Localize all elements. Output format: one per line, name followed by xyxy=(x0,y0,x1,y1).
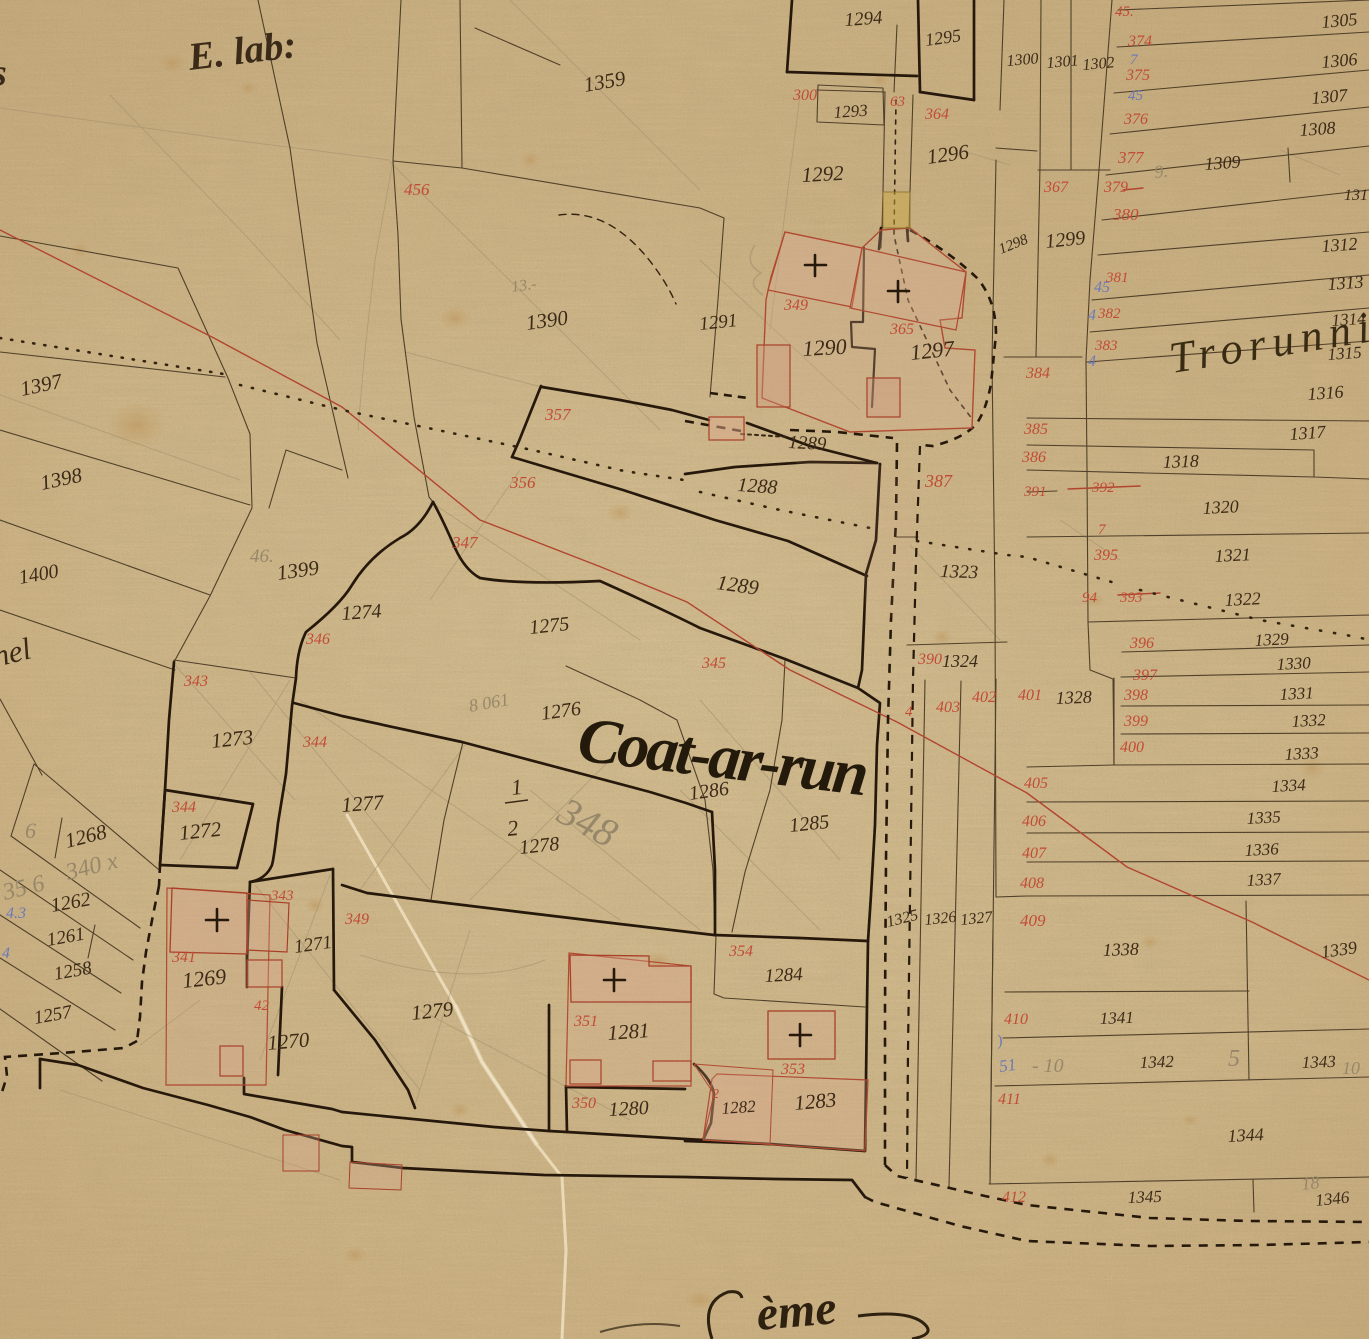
svg-text:1307: 1307 xyxy=(1311,85,1350,108)
svg-text:376: 376 xyxy=(1123,111,1148,128)
svg-text:1335: 1335 xyxy=(1246,807,1281,828)
svg-text:386: 386 xyxy=(1021,449,1046,466)
svg-text:350: 350 xyxy=(571,1095,596,1112)
svg-text:408: 408 xyxy=(1020,875,1044,892)
svg-text:356: 356 xyxy=(509,473,536,492)
svg-text:45.: 45. xyxy=(1115,4,1134,20)
svg-text:1322: 1322 xyxy=(1224,588,1261,610)
svg-text:1288: 1288 xyxy=(737,474,778,499)
svg-text:10: 10 xyxy=(1342,1058,1360,1078)
svg-text:1280: 1280 xyxy=(608,1097,649,1121)
svg-text:349: 349 xyxy=(783,297,808,314)
svg-text:1330: 1330 xyxy=(1276,653,1311,674)
svg-text:396: 396 xyxy=(1129,635,1154,652)
svg-text:1289: 1289 xyxy=(788,432,828,455)
svg-text:346: 346 xyxy=(305,631,330,648)
svg-text:4.3: 4.3 xyxy=(6,905,26,922)
svg-text:1328: 1328 xyxy=(1055,687,1092,708)
svg-text:1318: 1318 xyxy=(1162,451,1199,472)
svg-text:1278: 1278 xyxy=(518,833,560,859)
svg-text:391: 391 xyxy=(1023,484,1047,500)
svg-text:94: 94 xyxy=(1082,590,1098,606)
svg-text:409: 409 xyxy=(1020,911,1046,930)
svg-text:400: 400 xyxy=(1120,739,1144,756)
svg-text:45: 45 xyxy=(1128,88,1144,104)
svg-text:377: 377 xyxy=(1117,148,1145,167)
svg-text:1283: 1283 xyxy=(793,1087,837,1115)
svg-text:1300: 1300 xyxy=(1006,50,1039,70)
svg-text:405: 405 xyxy=(1024,775,1048,792)
svg-text:46.: 46. xyxy=(250,546,274,567)
svg-text:383: 383 xyxy=(1094,338,1118,354)
svg-text:392: 392 xyxy=(1091,480,1115,496)
svg-text:395: 395 xyxy=(1093,547,1118,564)
svg-text:1293: 1293 xyxy=(833,101,868,122)
svg-text:1306: 1306 xyxy=(1321,49,1359,72)
svg-text:1332: 1332 xyxy=(1291,710,1326,731)
svg-text:406: 406 xyxy=(1022,813,1046,830)
svg-text:375: 375 xyxy=(1125,67,1150,84)
svg-text:4: 4 xyxy=(905,704,913,720)
svg-text:398: 398 xyxy=(1123,687,1148,704)
svg-text:1345: 1345 xyxy=(1127,1187,1162,1207)
svg-text:403: 403 xyxy=(936,699,960,716)
svg-text:367: 367 xyxy=(1043,179,1069,196)
svg-text:1281: 1281 xyxy=(607,1018,651,1045)
svg-text:1292: 1292 xyxy=(801,161,845,187)
svg-text:387: 387 xyxy=(924,471,953,491)
svg-text:384: 384 xyxy=(1025,365,1050,382)
svg-text:401: 401 xyxy=(1018,687,1042,704)
svg-text:343: 343 xyxy=(270,888,294,904)
svg-text:5: 5 xyxy=(1228,1046,1240,1072)
svg-text:1337: 1337 xyxy=(1246,869,1282,890)
svg-text:2: 2 xyxy=(712,1087,719,1102)
svg-text:1299: 1299 xyxy=(1044,227,1086,253)
svg-text:1317: 1317 xyxy=(1289,421,1327,444)
svg-text:18: 18 xyxy=(1300,1172,1320,1194)
svg-text:51: 51 xyxy=(998,1055,1017,1076)
svg-text:456: 456 xyxy=(404,180,430,199)
svg-text:390: 390 xyxy=(917,651,942,668)
svg-text:1269: 1269 xyxy=(181,964,227,993)
svg-text:1334: 1334 xyxy=(1271,775,1306,796)
svg-text:1343: 1343 xyxy=(1301,1052,1336,1072)
svg-text:1320: 1320 xyxy=(1202,496,1239,518)
svg-text:402: 402 xyxy=(972,689,996,706)
svg-text:385: 385 xyxy=(1023,421,1048,438)
svg-text:1313: 1313 xyxy=(1327,272,1364,294)
svg-text:1329: 1329 xyxy=(1254,629,1289,650)
svg-text:- 10: - 10 xyxy=(1032,1055,1064,1077)
svg-text:1344: 1344 xyxy=(1227,1124,1264,1146)
svg-text:300: 300 xyxy=(792,87,817,104)
svg-text:1274: 1274 xyxy=(341,600,382,625)
svg-text:1326: 1326 xyxy=(924,909,958,929)
svg-text:s: s xyxy=(0,52,7,94)
svg-text:1324: 1324 xyxy=(942,651,978,671)
svg-text:1270: 1270 xyxy=(266,1027,310,1055)
svg-text:6: 6 xyxy=(25,818,36,843)
svg-text:1305: 1305 xyxy=(1321,9,1359,32)
svg-text:341: 341 xyxy=(171,949,196,966)
svg-text:1331: 1331 xyxy=(1279,683,1314,704)
svg-text:397: 397 xyxy=(1132,667,1158,684)
svg-text:353: 353 xyxy=(780,1061,805,1078)
svg-text:349: 349 xyxy=(344,911,369,928)
svg-text:374: 374 xyxy=(1127,33,1152,50)
svg-text:345: 345 xyxy=(701,655,726,672)
svg-text:1291: 1291 xyxy=(698,310,738,335)
svg-text:ème: ème xyxy=(754,1281,838,1339)
svg-text:1321: 1321 xyxy=(1214,544,1251,566)
svg-text:63: 63 xyxy=(890,94,905,110)
svg-text:381: 381 xyxy=(1105,270,1129,286)
svg-text:399: 399 xyxy=(1123,713,1148,730)
svg-text:1338: 1338 xyxy=(1102,939,1139,960)
svg-text:1316: 1316 xyxy=(1307,382,1344,404)
svg-text:1342: 1342 xyxy=(1139,1052,1174,1072)
svg-text:1282: 1282 xyxy=(721,1097,757,1118)
svg-text:4: 4 xyxy=(1088,307,1096,324)
svg-text:382: 382 xyxy=(1097,306,1121,322)
svg-text:1341: 1341 xyxy=(1099,1008,1134,1028)
svg-text:1309: 1309 xyxy=(1204,152,1241,174)
svg-text:13.-: 13.- xyxy=(510,276,537,296)
svg-text:1301: 1301 xyxy=(1046,52,1079,72)
svg-text:1308: 1308 xyxy=(1299,118,1336,140)
svg-text:1333: 1333 xyxy=(1284,743,1319,764)
svg-text:357: 357 xyxy=(544,405,572,424)
svg-text:1302: 1302 xyxy=(1082,54,1115,74)
svg-text:1290: 1290 xyxy=(802,334,847,361)
svg-text:344: 344 xyxy=(302,734,327,751)
svg-text:1284: 1284 xyxy=(764,964,804,987)
svg-text:1327: 1327 xyxy=(960,909,995,929)
svg-text:351: 351 xyxy=(573,1013,598,1030)
svg-text:1273: 1273 xyxy=(210,725,254,753)
svg-text:1336: 1336 xyxy=(1244,839,1279,860)
svg-text:4: 4 xyxy=(2,945,10,962)
svg-text:343: 343 xyxy=(183,673,208,690)
svg-text:4: 4 xyxy=(1088,353,1096,370)
svg-text:365: 365 xyxy=(889,321,914,338)
svg-text:412: 412 xyxy=(1002,1189,1026,1206)
svg-text:410: 410 xyxy=(1004,1011,1028,1028)
svg-text:42: 42 xyxy=(254,998,270,1014)
svg-text:411: 411 xyxy=(998,1091,1021,1108)
svg-text:1279: 1279 xyxy=(410,997,455,1025)
svg-text:1277: 1277 xyxy=(341,790,386,817)
svg-text:380: 380 xyxy=(1112,205,1139,224)
svg-text:364: 364 xyxy=(924,106,949,123)
svg-text:1272: 1272 xyxy=(178,817,223,845)
svg-text:354: 354 xyxy=(728,943,753,960)
svg-text:393: 393 xyxy=(1119,590,1143,606)
svg-text:407: 407 xyxy=(1022,845,1047,862)
svg-text:1312: 1312 xyxy=(1321,234,1358,256)
svg-text:1297: 1297 xyxy=(909,335,956,365)
svg-text:379: 379 xyxy=(1103,179,1128,196)
svg-text:344: 344 xyxy=(171,799,196,816)
svg-text:1275: 1275 xyxy=(528,613,570,639)
svg-text:9.: 9. xyxy=(1153,161,1169,182)
svg-text:131: 131 xyxy=(1344,187,1368,204)
svg-text:347: 347 xyxy=(451,533,479,552)
svg-text:1323: 1323 xyxy=(940,561,979,583)
svg-text:1285: 1285 xyxy=(788,811,830,837)
svg-text:1294: 1294 xyxy=(844,7,884,31)
